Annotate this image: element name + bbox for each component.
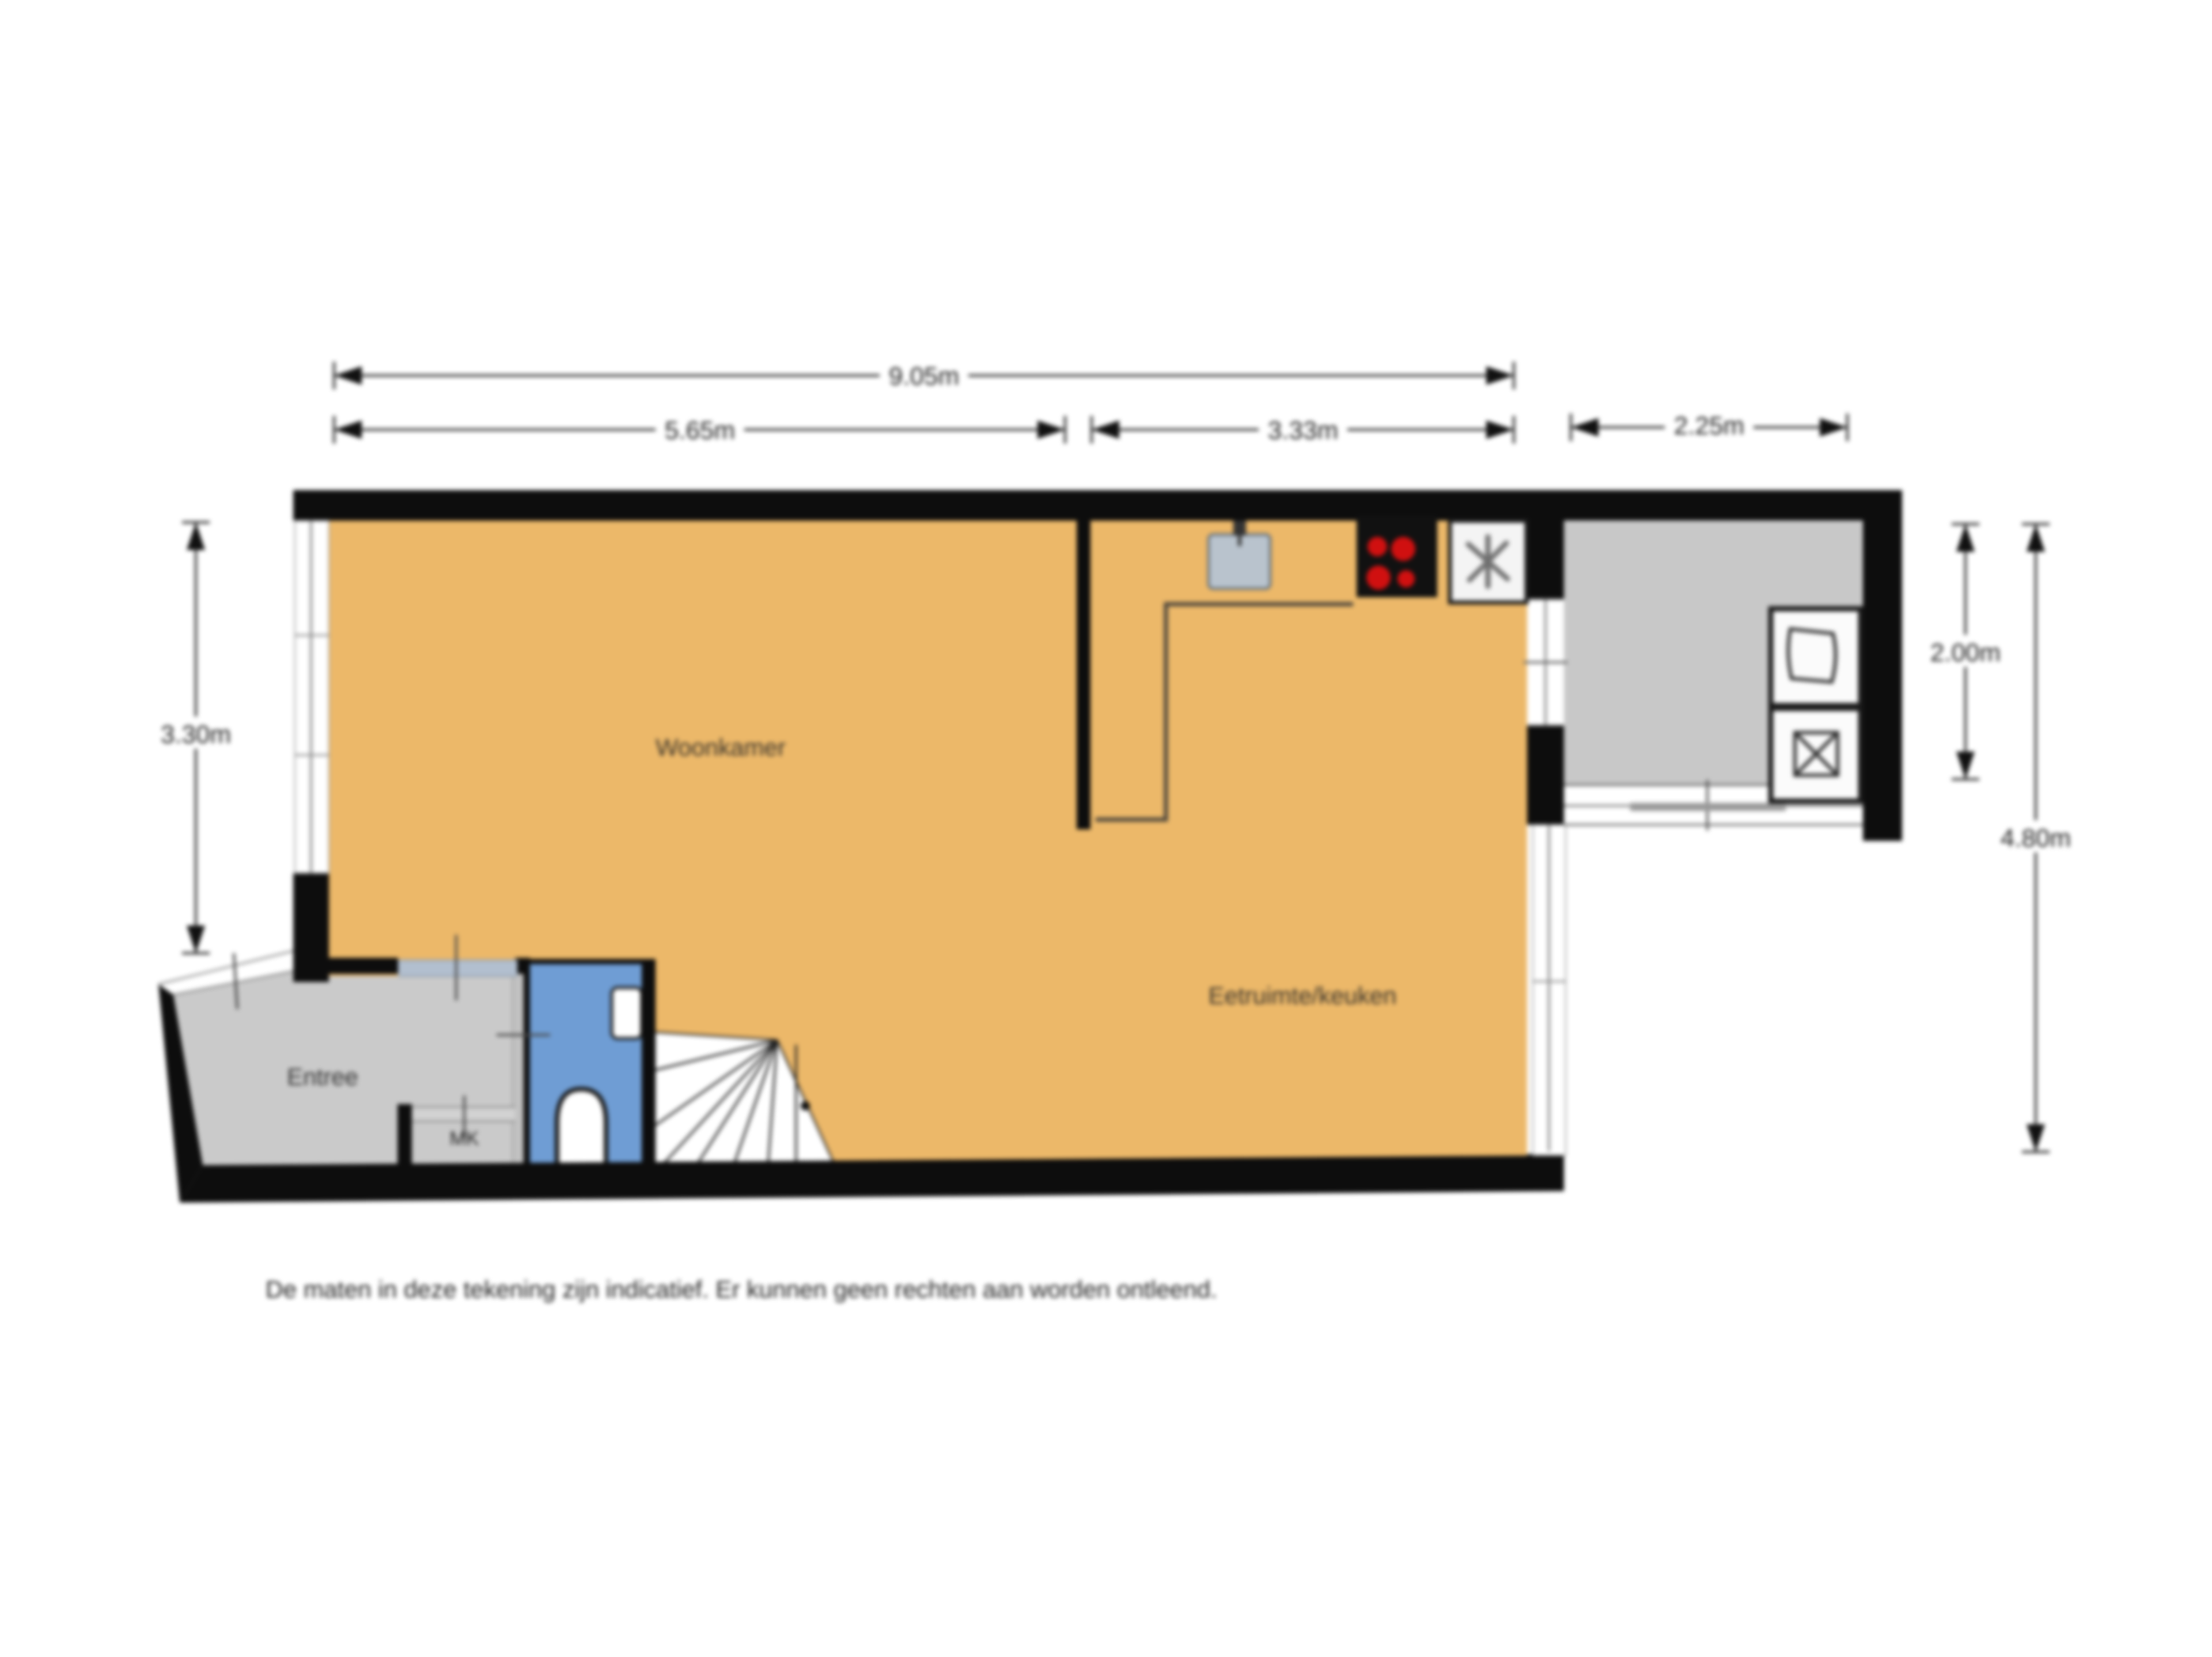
svg-text:De maten in deze tekening zijn: De maten in deze tekening zijn indicatie…	[266, 1276, 1217, 1303]
svg-text:3.30m: 3.30m	[161, 721, 231, 749]
svg-text:3.33m: 3.33m	[1268, 416, 1338, 445]
svg-text:Woonkamer: Woonkamer	[656, 734, 786, 761]
svg-text:2.00m: 2.00m	[1930, 639, 2001, 667]
svg-text:9.05m: 9.05m	[889, 362, 959, 390]
svg-text:2.25m: 2.25m	[1674, 412, 1744, 440]
svg-text:5.65m: 5.65m	[665, 416, 735, 445]
svg-text:MK: MK	[450, 1128, 479, 1150]
svg-text:Eetruimte/keuken: Eetruimte/keuken	[1209, 982, 1397, 1009]
svg-text:Entree: Entree	[287, 1063, 358, 1090]
svg-text:4.80m: 4.80m	[2001, 824, 2071, 852]
